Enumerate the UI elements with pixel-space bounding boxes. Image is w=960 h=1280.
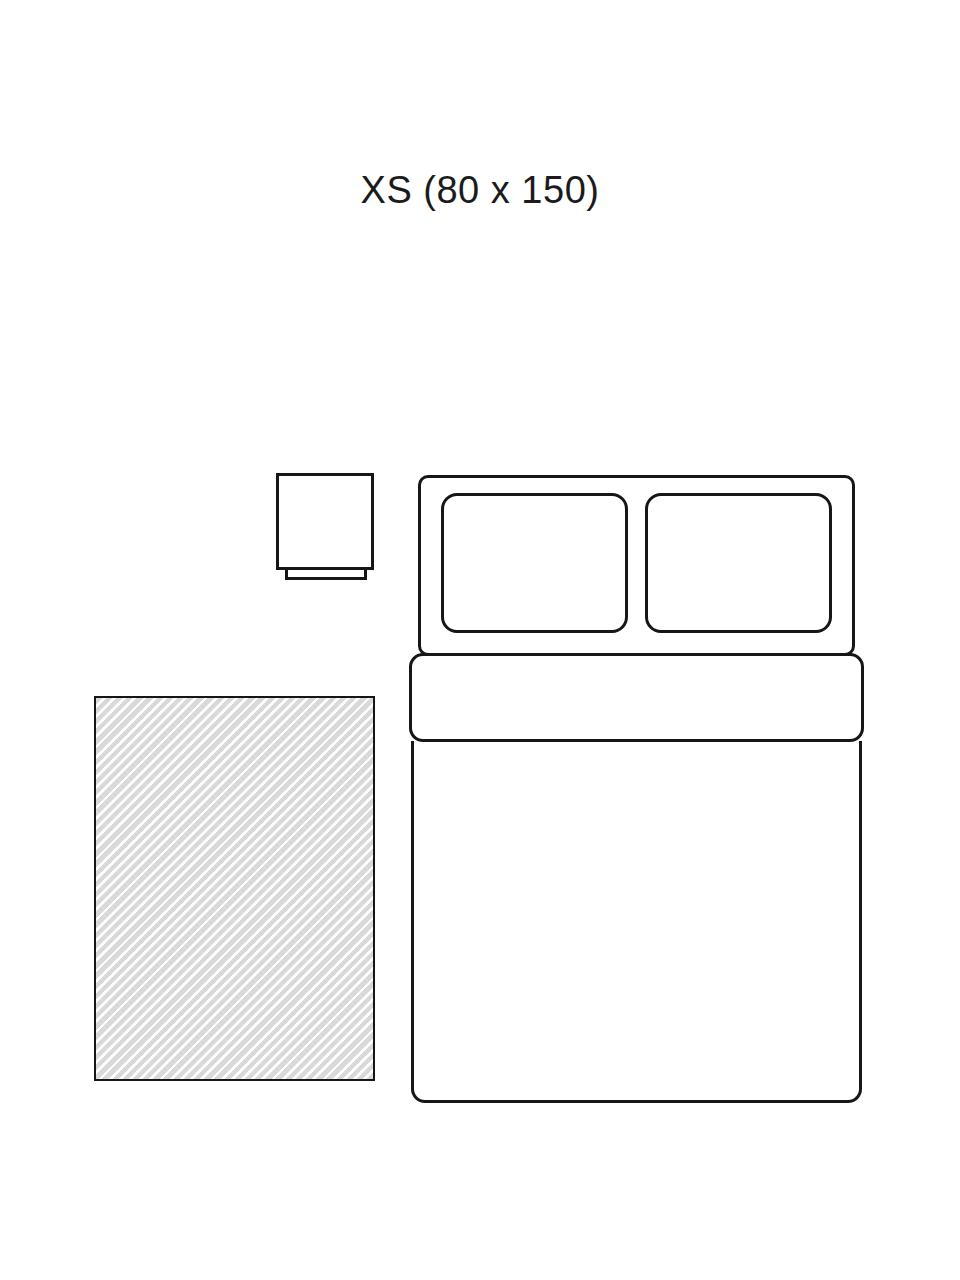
size-label: XS (80 x 150) — [0, 168, 960, 212]
rug-hatched-area — [94, 696, 375, 1081]
size-guide-diagram: XS (80 x 150) — [0, 0, 960, 1280]
bed-duvet-fold-icon — [409, 653, 864, 742]
nightstand-icon — [276, 473, 374, 570]
pillow-left-icon — [441, 493, 628, 633]
bed-body-icon — [411, 741, 862, 1103]
pillow-right-icon — [645, 493, 832, 633]
